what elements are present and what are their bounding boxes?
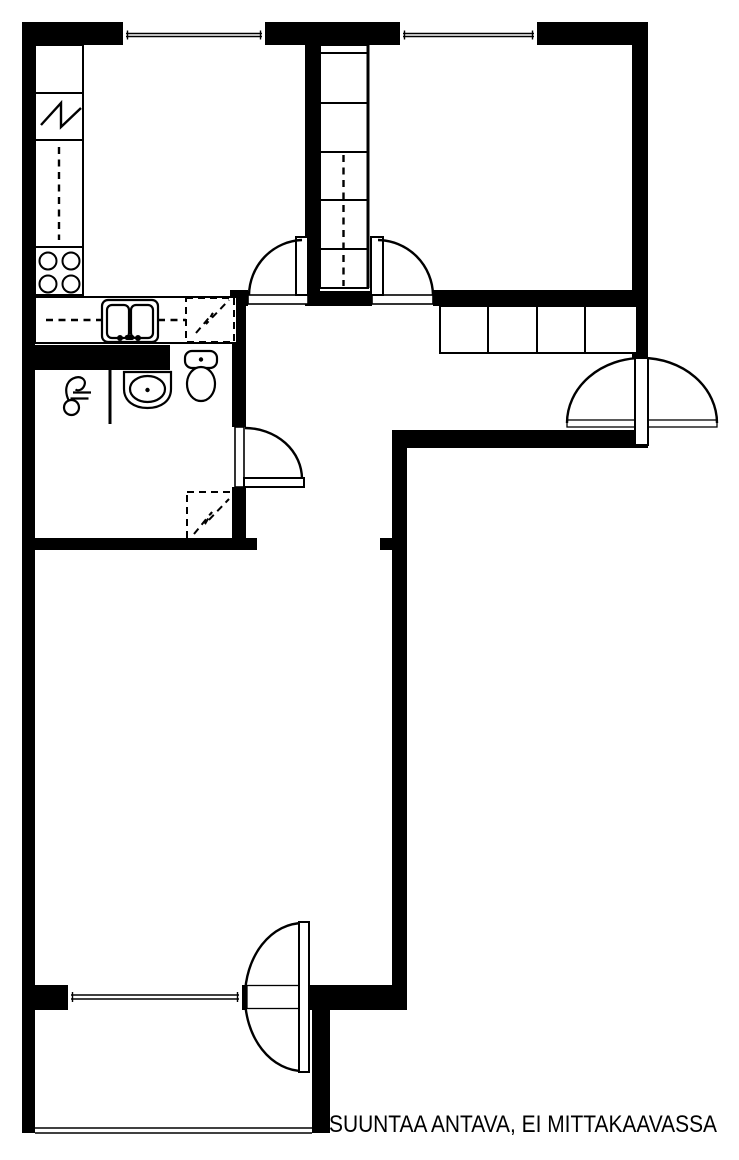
- balcony-door-swing-icon: [245, 922, 309, 1072]
- wall-bedroom-bottom: [433, 290, 648, 306]
- wall-segment: [265, 22, 400, 45]
- washbasin-icon: [124, 372, 171, 408]
- disclaimer-text: SUUNTAA ANTAVA, EI MITTAKAAVASSA: [329, 1111, 717, 1138]
- closets: [35, 45, 637, 353]
- double-basin-sink-icon: [102, 300, 158, 342]
- wall-balcony-right: [312, 1010, 330, 1133]
- wall-living-right: [392, 433, 407, 1010]
- kitchen-cabinet: [35, 45, 83, 247]
- window-icon: [68, 985, 242, 1010]
- wardrobe-cells-icon: [440, 306, 637, 353]
- door-swing-arc-icon: [235, 427, 304, 487]
- doors: [235, 237, 717, 1072]
- toilet-icon: [185, 351, 217, 401]
- wall-segment: [537, 22, 648, 45]
- window-icon: [400, 22, 537, 45]
- wall-segment: [22, 22, 123, 45]
- wall-counter-bath: [30, 345, 170, 370]
- floor-plan-drawing: SUUNTAA ANTAVA, EI MITTAKAAVASSA: [0, 0, 739, 1160]
- door-swing-arc-icon: [371, 237, 433, 304]
- wall-exterior-left: [22, 22, 35, 1133]
- window-icon: [123, 22, 265, 45]
- wall-segment: [308, 291, 372, 306]
- windows: [68, 22, 537, 1010]
- wall-segment: [380, 538, 392, 550]
- wall-segment: [35, 985, 68, 1010]
- floor-plan-page: SUUNTAA ANTAVA, EI MITTAKAAVASSA: [0, 0, 739, 1160]
- wall-segment: [303, 985, 407, 1010]
- dashed-appliance-reservation-icon: [187, 492, 234, 540]
- bathroom: [64, 351, 234, 540]
- door-swing-arc-icon: [248, 237, 308, 304]
- wardrobe-cells-icon: [320, 45, 368, 288]
- stove-burners-icon: [35, 247, 83, 295]
- balcony-slab-edge: [35, 1128, 312, 1133]
- wall-living-top: [35, 538, 257, 550]
- wall-under-entrance: [392, 430, 648, 448]
- shower-drain-icon: [64, 377, 91, 415]
